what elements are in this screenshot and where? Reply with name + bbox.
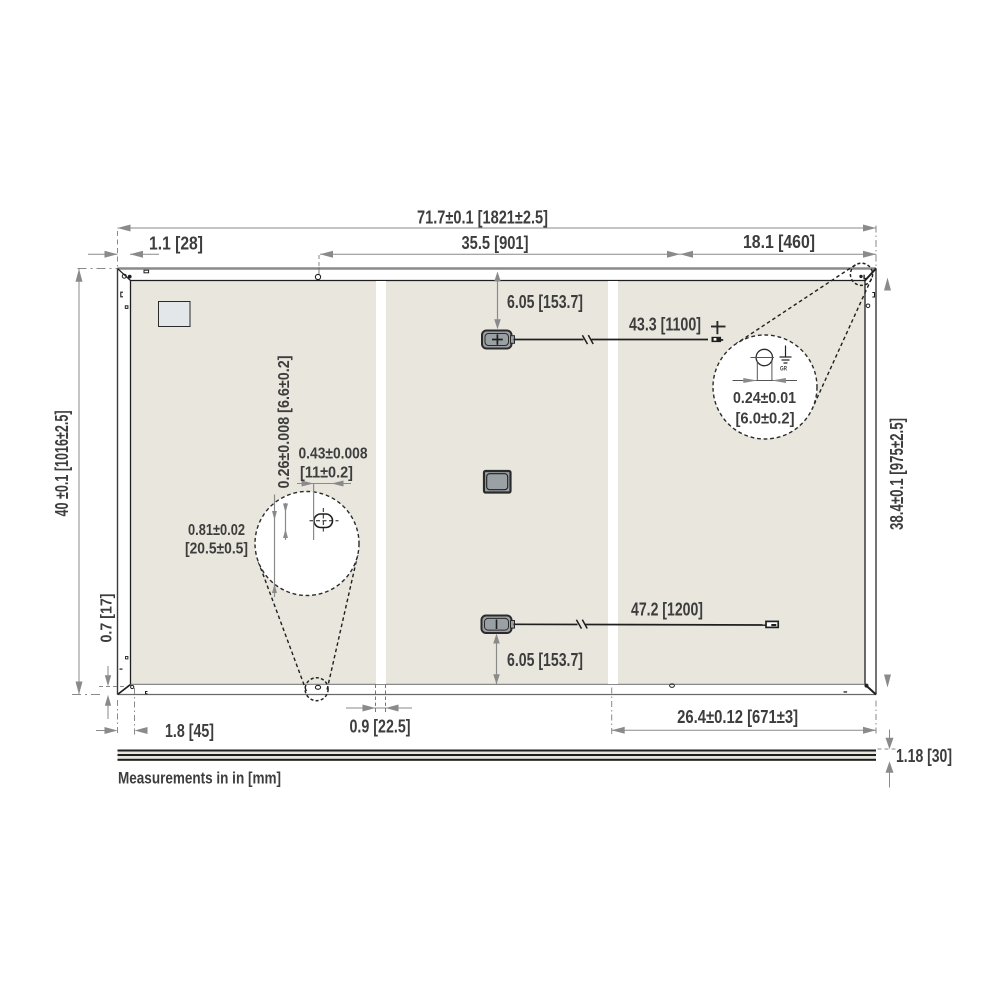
svg-text:38.4±0.1 [975±2.5]: 38.4±0.1 [975±2.5] (887, 418, 907, 530)
svg-text:1.8 [45]: 1.8 [45] (165, 721, 214, 741)
svg-text:35.5 [901]: 35.5 [901] (462, 233, 529, 253)
svg-text:0.9 [22.5]: 0.9 [22.5] (350, 716, 411, 736)
svg-text:[11±0.2]: [11±0.2] (300, 465, 353, 482)
svg-text:6.05 [153.7]: 6.05 [153.7] (507, 650, 583, 670)
svg-text:0.26±0.008 [6.6±0.2]: 0.26±0.008 [6.6±0.2] (276, 356, 293, 489)
svg-text:43.3 [1100]: 43.3 [1100] (629, 314, 701, 334)
svg-text:GR: GR (780, 366, 787, 373)
svg-text:0.43±0.008: 0.43±0.008 (299, 446, 368, 463)
svg-text:47.2 [1200]: 47.2 [1200] (631, 599, 703, 619)
svg-text:26.4±0.12 [671±3]: 26.4±0.12 [671±3] (677, 707, 798, 727)
svg-text:0.7 [17]: 0.7 [17] (99, 594, 116, 643)
svg-text:0.81±0.02: 0.81±0.02 (188, 522, 245, 539)
svg-text:[6.0±0.2]: [6.0±0.2] (736, 411, 795, 428)
svg-text:1.18 [30]: 1.18 [30] (896, 746, 952, 766)
svg-text:1.1 [28]: 1.1 [28] (149, 234, 203, 254)
svg-text:0.24±0.01: 0.24±0.01 (733, 390, 796, 407)
svg-text:[20.5±0.5]: [20.5±0.5] (185, 541, 248, 558)
svg-text:18.1 [460]: 18.1 [460] (743, 232, 815, 252)
svg-text:Measurements in in [mm]: Measurements in in [mm] (118, 770, 281, 788)
svg-text:71.7±0.1 [1821±2.5]: 71.7±0.1 [1821±2.5] (417, 207, 548, 227)
svg-text:40 ±0.1 [1016±2.5]: 40 ±0.1 [1016±2.5] (52, 411, 72, 517)
svg-text:6.05 [153.7]: 6.05 [153.7] (507, 292, 583, 312)
